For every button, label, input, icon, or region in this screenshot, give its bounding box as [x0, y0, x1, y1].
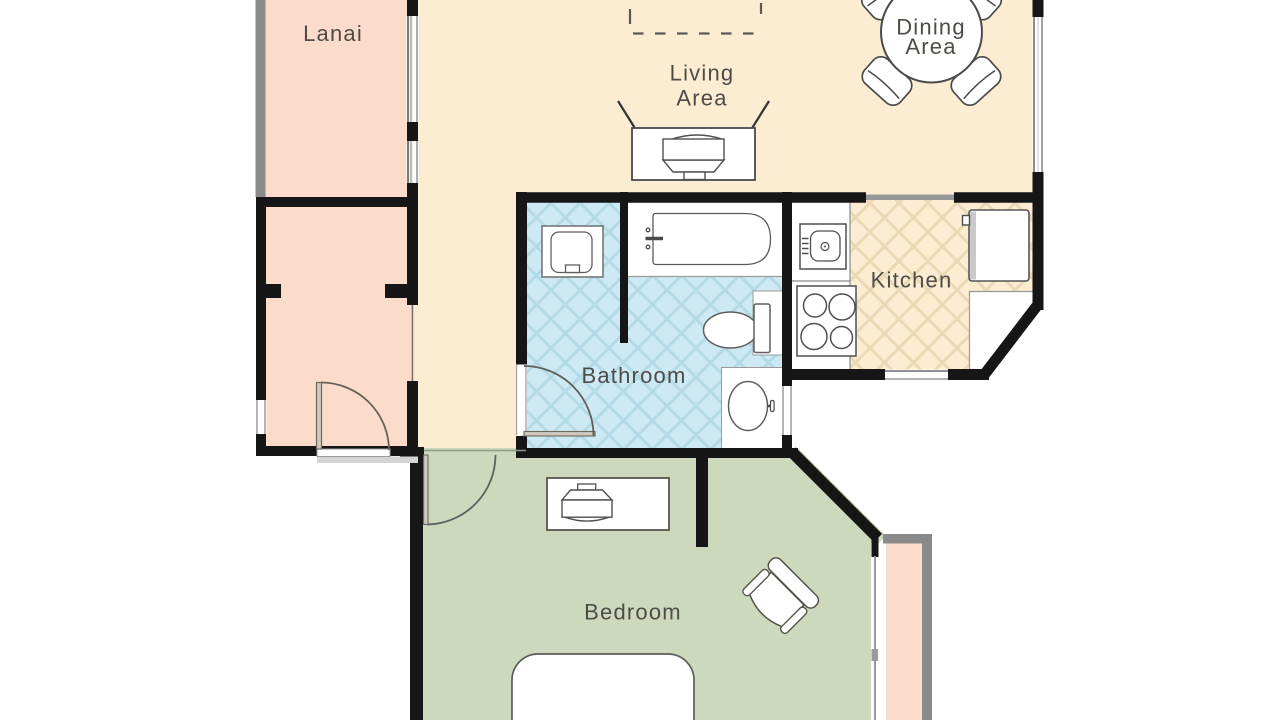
svg-text:Living: Living [670, 61, 735, 86]
svg-text:Area: Area [905, 34, 956, 59]
svg-text:Lanai: Lanai [303, 21, 363, 46]
svg-text:Bathroom: Bathroom [582, 363, 687, 388]
svg-text:Area: Area [676, 86, 727, 111]
svg-text:Kitchen: Kitchen [871, 268, 953, 293]
svg-text:Bedroom: Bedroom [584, 600, 682, 625]
